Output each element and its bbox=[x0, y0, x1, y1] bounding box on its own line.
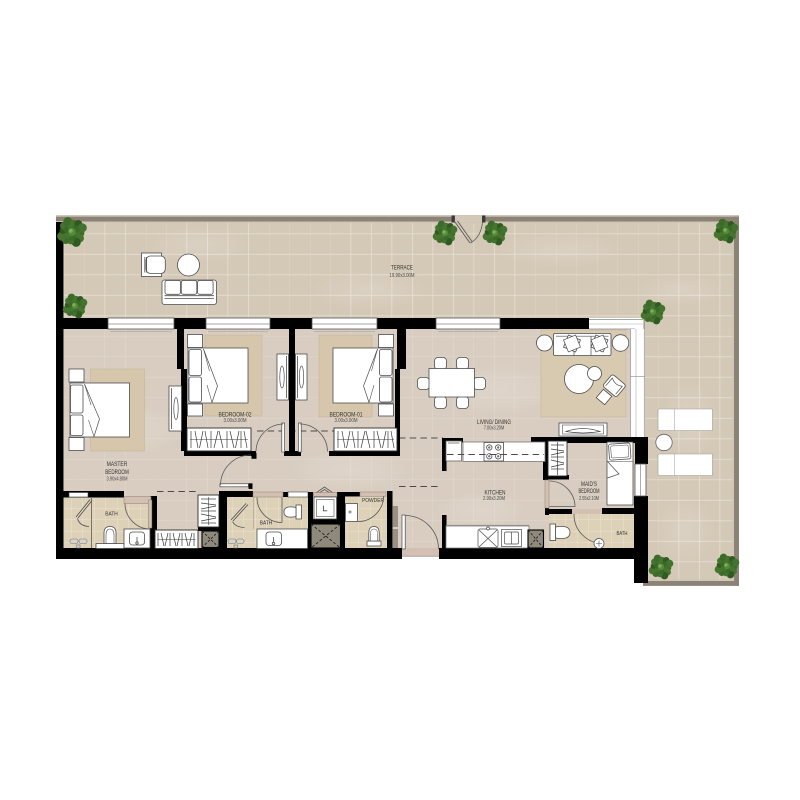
svg-text:19.90x3.00M: 19.90x3.00M bbox=[390, 273, 415, 279]
svg-text:BATH: BATH bbox=[617, 531, 628, 537]
svg-text:2.55x2.10M: 2.55x2.10M bbox=[579, 496, 599, 502]
svg-text:3.90x4.80M: 3.90x4.80M bbox=[107, 476, 128, 482]
svg-text:3.00x3.00M: 3.00x3.00M bbox=[335, 418, 358, 424]
svg-text:MASTER: MASTER bbox=[107, 461, 128, 468]
svg-text:3.00x3.00M: 3.00x3.00M bbox=[224, 418, 247, 424]
svg-text:TERRACE: TERRACE bbox=[391, 265, 413, 272]
svg-text:POWDER: POWDER bbox=[362, 498, 384, 504]
svg-text:BATH: BATH bbox=[260, 521, 273, 527]
svg-text:BEDROOM: BEDROOM bbox=[105, 469, 129, 476]
svg-text:BATH: BATH bbox=[105, 512, 118, 518]
svg-text:7.00x3.20M: 7.00x3.20M bbox=[484, 426, 505, 432]
svg-text:MAID'S: MAID'S bbox=[581, 481, 597, 488]
svg-text:2.90x3.20M: 2.90x3.20M bbox=[483, 496, 505, 502]
svg-text:BEDROOM: BEDROOM bbox=[579, 488, 600, 495]
